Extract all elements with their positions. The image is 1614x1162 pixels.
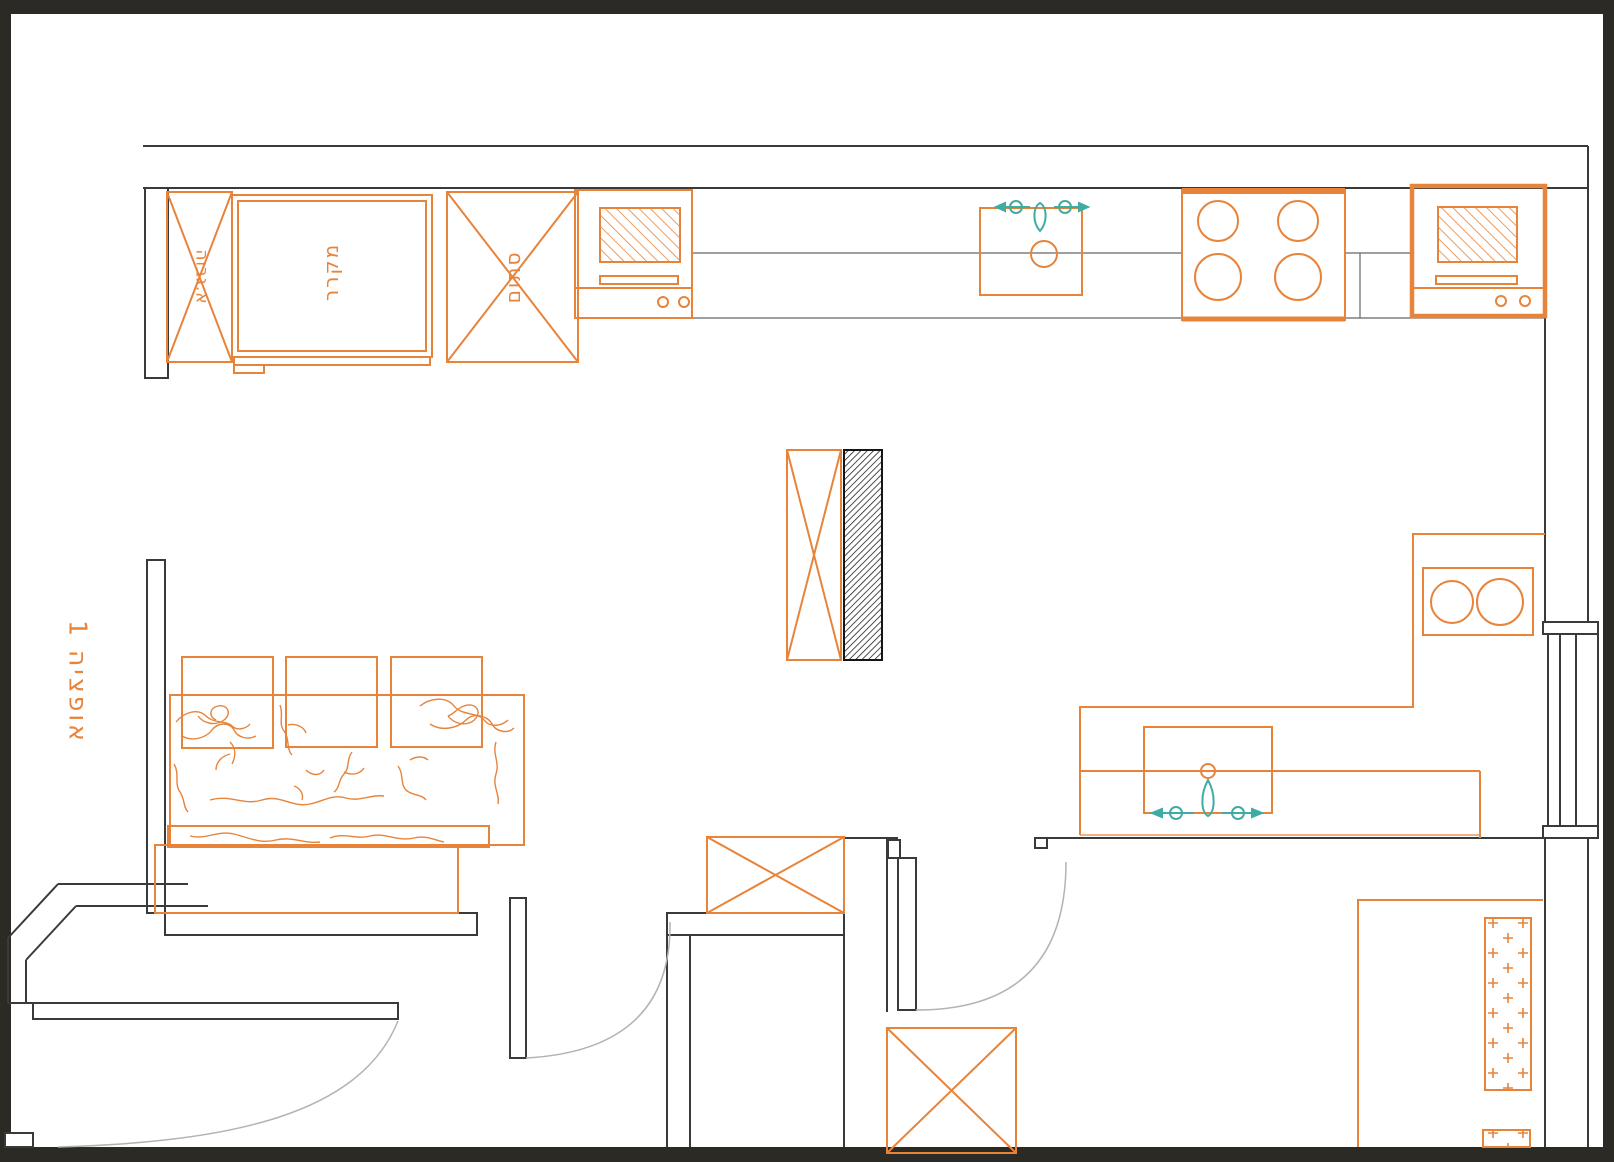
plus-hatch-strip-small	[1483, 1130, 1530, 1147]
plus-hatch-strip	[1485, 918, 1531, 1090]
center-door-leaf	[510, 898, 526, 1058]
wall-end-cap	[1035, 838, 1047, 848]
oven2-window	[1438, 207, 1517, 262]
wall-under-island	[165, 913, 477, 935]
concrete-column-hatch	[844, 450, 882, 660]
tall-cabinet-label: א.גבוה	[193, 249, 210, 304]
wall-under-cabinet	[667, 913, 844, 935]
right-door-jamb	[888, 840, 900, 858]
option-title: אופציה 1	[66, 620, 91, 744]
entry-door-leaf	[33, 1003, 398, 1019]
cad-viewport: א.גבוה מקרר סתום אופציה 1	[0, 0, 1614, 1162]
window-frame	[1548, 622, 1598, 838]
left-wall-stub	[145, 188, 168, 378]
window-sill-bottom	[1543, 826, 1598, 838]
right-door-leaf	[898, 858, 916, 1010]
blocked-cabinet-label: סתום	[503, 251, 523, 304]
refrigerator-label: מקרר	[321, 243, 341, 301]
window-sill-top	[1543, 622, 1598, 634]
floor-plan-svg	[0, 0, 1614, 1162]
corner-wall-stub	[5, 1133, 33, 1147]
oven-window	[600, 208, 680, 262]
